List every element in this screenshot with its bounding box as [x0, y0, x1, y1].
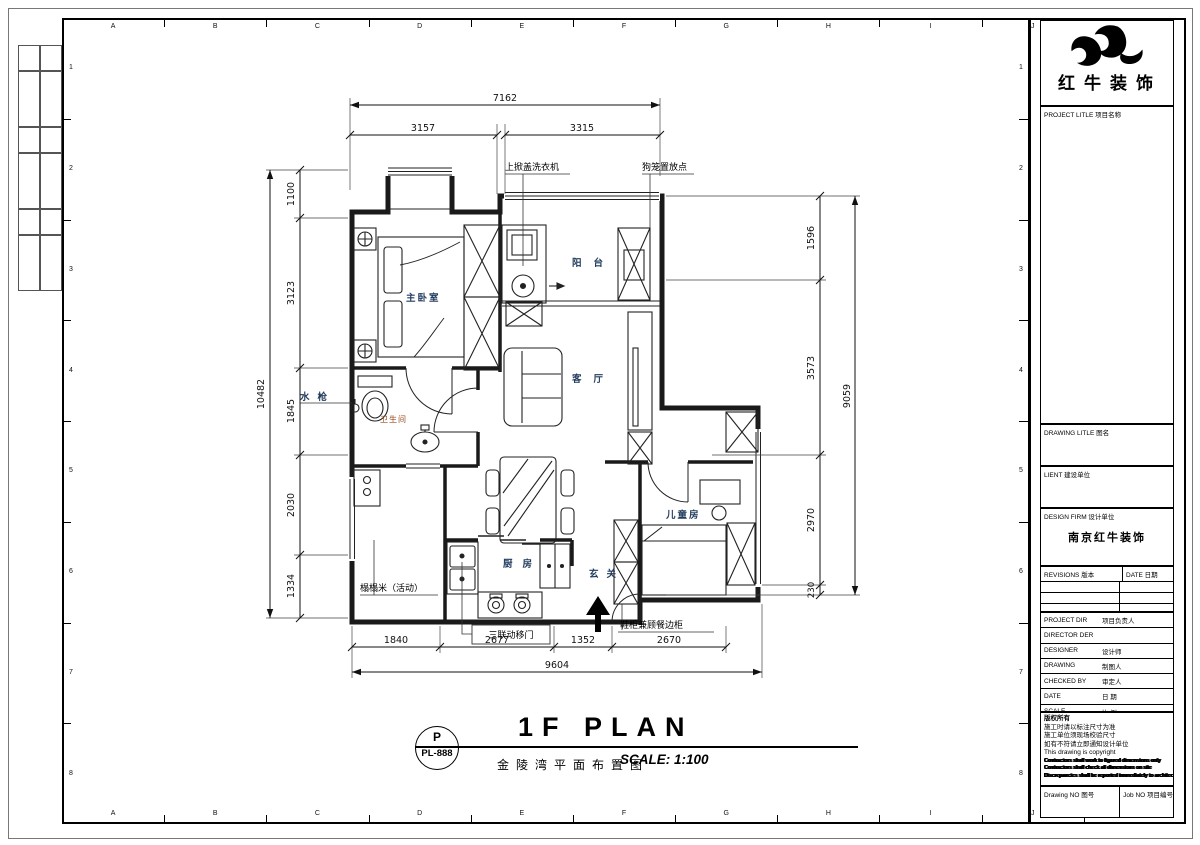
dim-left-seg2: 1845: [286, 399, 297, 423]
fridge: [540, 544, 570, 588]
label-balcony: 阳台: [572, 257, 615, 269]
plan-title-en: 1F PLAN: [518, 712, 694, 743]
dim-bottom-seg0: 1840: [384, 635, 408, 646]
fold-mark-box: [40, 45, 62, 71]
kids-bed: [642, 525, 726, 595]
dim-right-seg2: 2970: [806, 508, 817, 532]
revisions-label: REVISIONS 版本: [1041, 567, 1123, 581]
washing-machine: [502, 225, 564, 303]
drawing-no-label: Drawing NO 图号: [1041, 787, 1120, 817]
nightstand-icon: [354, 228, 376, 362]
bath-door: [434, 388, 478, 432]
fold-mark-box: [40, 235, 62, 291]
note-line: 施工单位须现场校验尺寸: [1044, 732, 1173, 741]
label-living-room: 客厅: [571, 373, 615, 385]
staff-row-label: CHECKED BY: [1044, 678, 1102, 685]
label-entry: 玄关: [589, 568, 624, 580]
design-firm-label: DESIGN FIRM 设计单位: [1041, 509, 1173, 521]
fold-mark-box: [18, 235, 40, 291]
title-underline: [415, 746, 858, 748]
plan-tag-letter: P: [416, 730, 458, 744]
revisions-date-label: DATE 日期: [1123, 567, 1173, 581]
fold-mark-box: [40, 71, 62, 127]
dim-right-seg0: 1596: [806, 226, 817, 250]
fold-mark-box: [40, 127, 62, 153]
fold-mark-box: [18, 45, 40, 71]
fold-mark-box: [40, 209, 62, 235]
dim-left-seg0: 1100: [286, 182, 297, 206]
fold-mark-box: [18, 153, 40, 209]
extension-lines: [266, 98, 860, 678]
staff-row: DIRECTOR DER: [1041, 628, 1173, 643]
grid-letter: J: [1028, 810, 1038, 817]
dim-left-total: 10482: [256, 379, 267, 409]
dim-left-seg4: 1334: [286, 574, 297, 598]
revision-row: [1041, 593, 1173, 604]
staff-rows: PROJECT DIR项目负责人DIRECTOR DERDESIGNER设计师D…: [1040, 612, 1174, 712]
dim-right-seg3: 230: [807, 582, 817, 598]
dim-bottom-seg3: 2670: [657, 635, 681, 646]
bull-logo-icon: [1062, 23, 1152, 69]
dim-bottom-seg2: 1352: [571, 635, 595, 646]
dim-right-total: 9059: [842, 384, 853, 408]
sofa: [504, 348, 562, 426]
anno-shoe-cabinet: 鞋柜兼顾餐边柜: [620, 619, 683, 631]
label-kids-room: 儿童房: [665, 509, 701, 521]
bath-sink: [411, 425, 439, 452]
drawing-sheet: { "sheet": { "grid_letters": ["A","B","C…: [0, 0, 1200, 845]
dim-bottom-seg1: 2677: [485, 635, 509, 646]
dim-top-total: 7162: [493, 93, 517, 104]
tv-cabinet: [628, 312, 652, 430]
doors: [406, 368, 688, 622]
title-block: 红牛装饰 PROJECT LITLE 项目名称 DRAWING LITLE 图名…: [1040, 18, 1176, 825]
staff-row-label: DATE: [1044, 693, 1102, 700]
dim-left-seg3: 2030: [286, 493, 297, 517]
anno-tatami: 榻榻米（活动）: [360, 582, 423, 594]
staff-row-cn: 制图人: [1102, 661, 1122, 671]
staff-row-cn: 设计师: [1102, 646, 1122, 656]
note-line: This drawing is copyright: [1044, 749, 1173, 758]
label-water-gun: 水枪: [300, 391, 335, 403]
project-title-label: PROJECT LITLE 项目名称: [1041, 107, 1173, 119]
plan-scale: SCALE: 1:100: [620, 752, 709, 767]
plan-tag-code: PL-888: [416, 747, 458, 760]
note-line: Contractors shall check all dimensions o…: [1044, 765, 1173, 773]
staff-row: PROJECT DIR项目负责人: [1041, 613, 1173, 628]
staff-row: DATE日 期: [1041, 689, 1173, 704]
windows: [347, 164, 762, 587]
stove: [478, 592, 542, 618]
staff-row-cn: 日 期: [1102, 691, 1117, 701]
revision-row: [1041, 582, 1173, 593]
note-line: 施工时请以标注尺寸为准: [1044, 724, 1173, 733]
staff-row-label: DIRECTOR DER: [1044, 632, 1102, 639]
drawing-title-box: DRAWING LITLE 图名: [1040, 424, 1174, 466]
tatami-cabinet: [354, 464, 440, 506]
note-line: 如有不符请立即通知设计单位: [1044, 741, 1173, 750]
staff-row: DRAWING制图人: [1041, 659, 1173, 674]
staff-row: DESIGNER设计师: [1041, 644, 1173, 659]
logo-text: 红牛装饰: [1047, 69, 1173, 94]
dining-table: [486, 457, 574, 543]
client-box: LIENT 建设单位: [1040, 466, 1174, 508]
drawing-title-label: DRAWING LITLE 图名: [1041, 425, 1173, 437]
design-firm-value: 南京红牛装饰: [1041, 529, 1173, 545]
dim-top-seg0: 3157: [411, 123, 435, 134]
job-no-label: Job NO 项目编号: [1120, 787, 1173, 817]
fold-mark-box: [40, 153, 62, 209]
kids-door: [648, 462, 688, 502]
notes-box: 版权所有施工时请以标注尺寸为准施工单位须现场校验尺寸如有不符请立即通知设计单位T…: [1040, 712, 1174, 786]
staff-row-label: PROJECT DIR: [1044, 617, 1102, 624]
note-line: Contractors shall work to figured dimens…: [1044, 758, 1173, 766]
staff-row-cn: 项目负责人: [1102, 615, 1135, 625]
note-line: Discrepancies shall be reported immediat…: [1044, 773, 1173, 781]
number-boxes: Drawing NO 图号 Job NO 项目编号: [1040, 786, 1174, 818]
staff-row: CHECKED BY审定人: [1041, 674, 1173, 689]
dim-left-seg1: 3123: [286, 281, 297, 305]
fold-mark-strip: [0, 0, 70, 400]
dim-top-seg1: 3315: [570, 123, 594, 134]
staff-row-label: DESIGNER: [1044, 647, 1102, 654]
fold-mark-box: [18, 71, 40, 127]
revisions-box: REVISIONS 版本 DATE 日期: [1040, 566, 1174, 612]
logo-box: 红牛装饰: [1040, 20, 1174, 106]
grid-letter: J: [1028, 23, 1038, 30]
fold-mark-box: [18, 209, 40, 235]
furniture: [351, 225, 740, 618]
kids-desk: [700, 480, 740, 520]
staff-row-label: DRAWING: [1044, 662, 1102, 669]
label-bathroom: 卫生间: [380, 414, 407, 424]
plan-tag: P PL-888: [415, 726, 459, 770]
staff-row-cn: 审定人: [1102, 676, 1122, 686]
design-firm-box: DESIGN FIRM 设计单位 南京红牛装饰: [1040, 508, 1174, 566]
dim-bottom-total: 9604: [545, 660, 569, 671]
label-kitchen: 厨房: [503, 558, 542, 570]
hatch-cabinets: [464, 225, 758, 604]
floor-plan: 主卧室 阳台 客厅 卫生间 儿童房 厨房 玄关 水枪 上掀盖洗衣机 狗笼置放点 …: [62, 18, 1028, 824]
fold-mark-box: [18, 127, 40, 153]
kitchen-sink: [447, 542, 478, 594]
project-title-box: PROJECT LITLE 项目名称: [1040, 106, 1174, 424]
entry-arrow-icon: [586, 596, 610, 632]
client-label: LIENT 建设单位: [1041, 467, 1173, 479]
master-door: [406, 368, 452, 414]
anno-washer: 上掀盖洗衣机: [505, 161, 559, 173]
entry-door: [612, 594, 640, 622]
label-master-bedroom: 主卧室: [406, 292, 441, 304]
anno-dog-cage: 狗笼置放点: [642, 161, 687, 173]
dim-right-seg1: 3573: [806, 356, 817, 380]
note-line: 版权所有: [1044, 715, 1173, 724]
